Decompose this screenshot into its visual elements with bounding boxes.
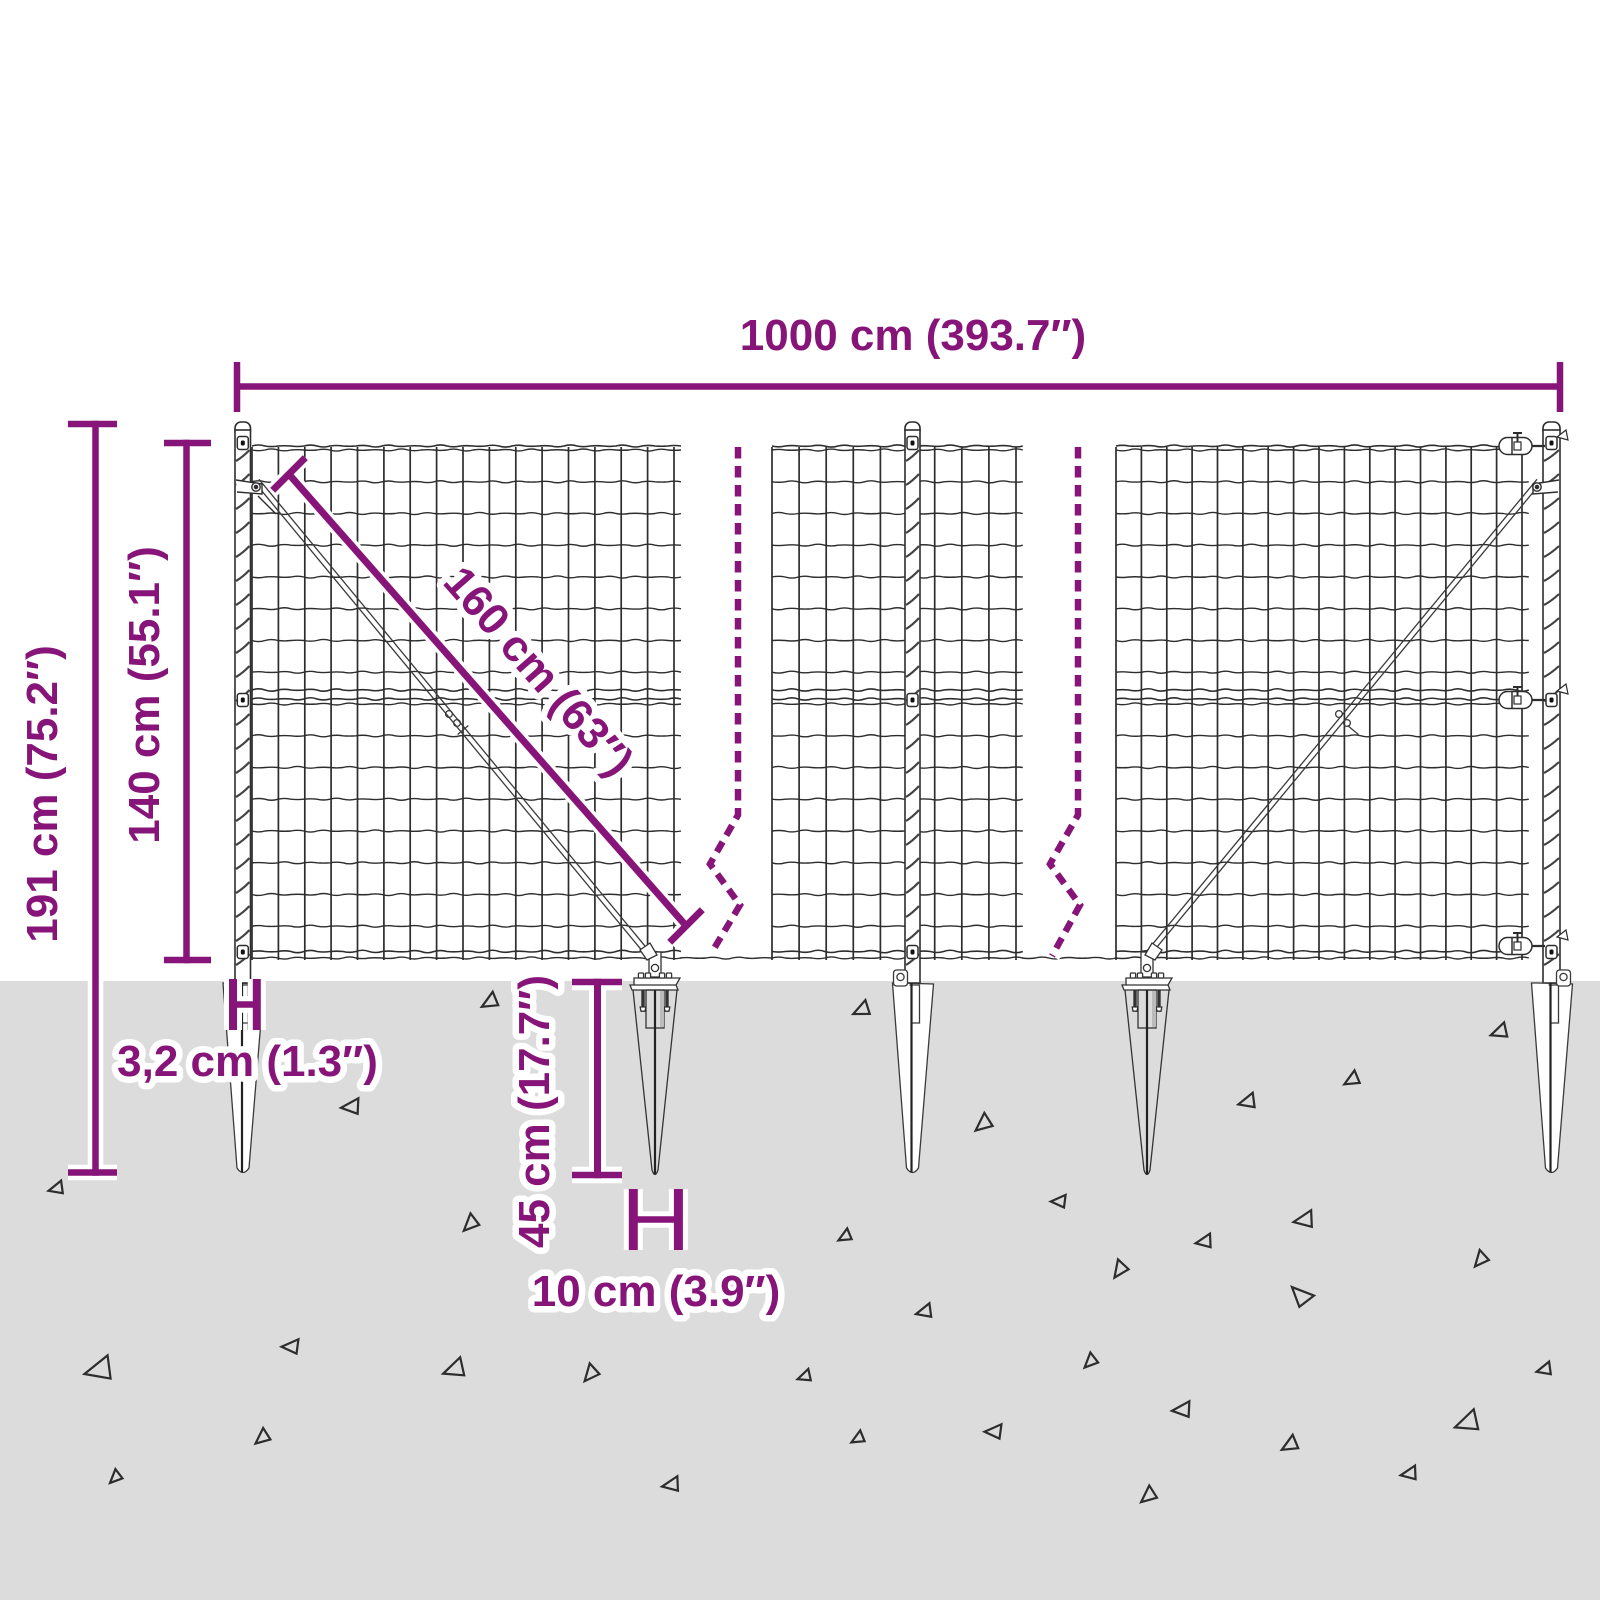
svg-text:1000 cm (393.7″): 1000 cm (393.7″) — [740, 311, 1086, 360]
svg-text:10 cm (3.9″): 10 cm (3.9″) — [532, 1267, 781, 1316]
svg-text:3,2 cm (1.3″): 3,2 cm (1.3″) — [117, 1037, 378, 1086]
svg-text:191 cm (75.2″): 191 cm (75.2″) — [18, 645, 67, 942]
svg-text:45 cm (17.7″): 45 cm (17.7″) — [510, 975, 559, 1248]
svg-text:140 cm (55.1″): 140 cm (55.1″) — [120, 546, 169, 843]
